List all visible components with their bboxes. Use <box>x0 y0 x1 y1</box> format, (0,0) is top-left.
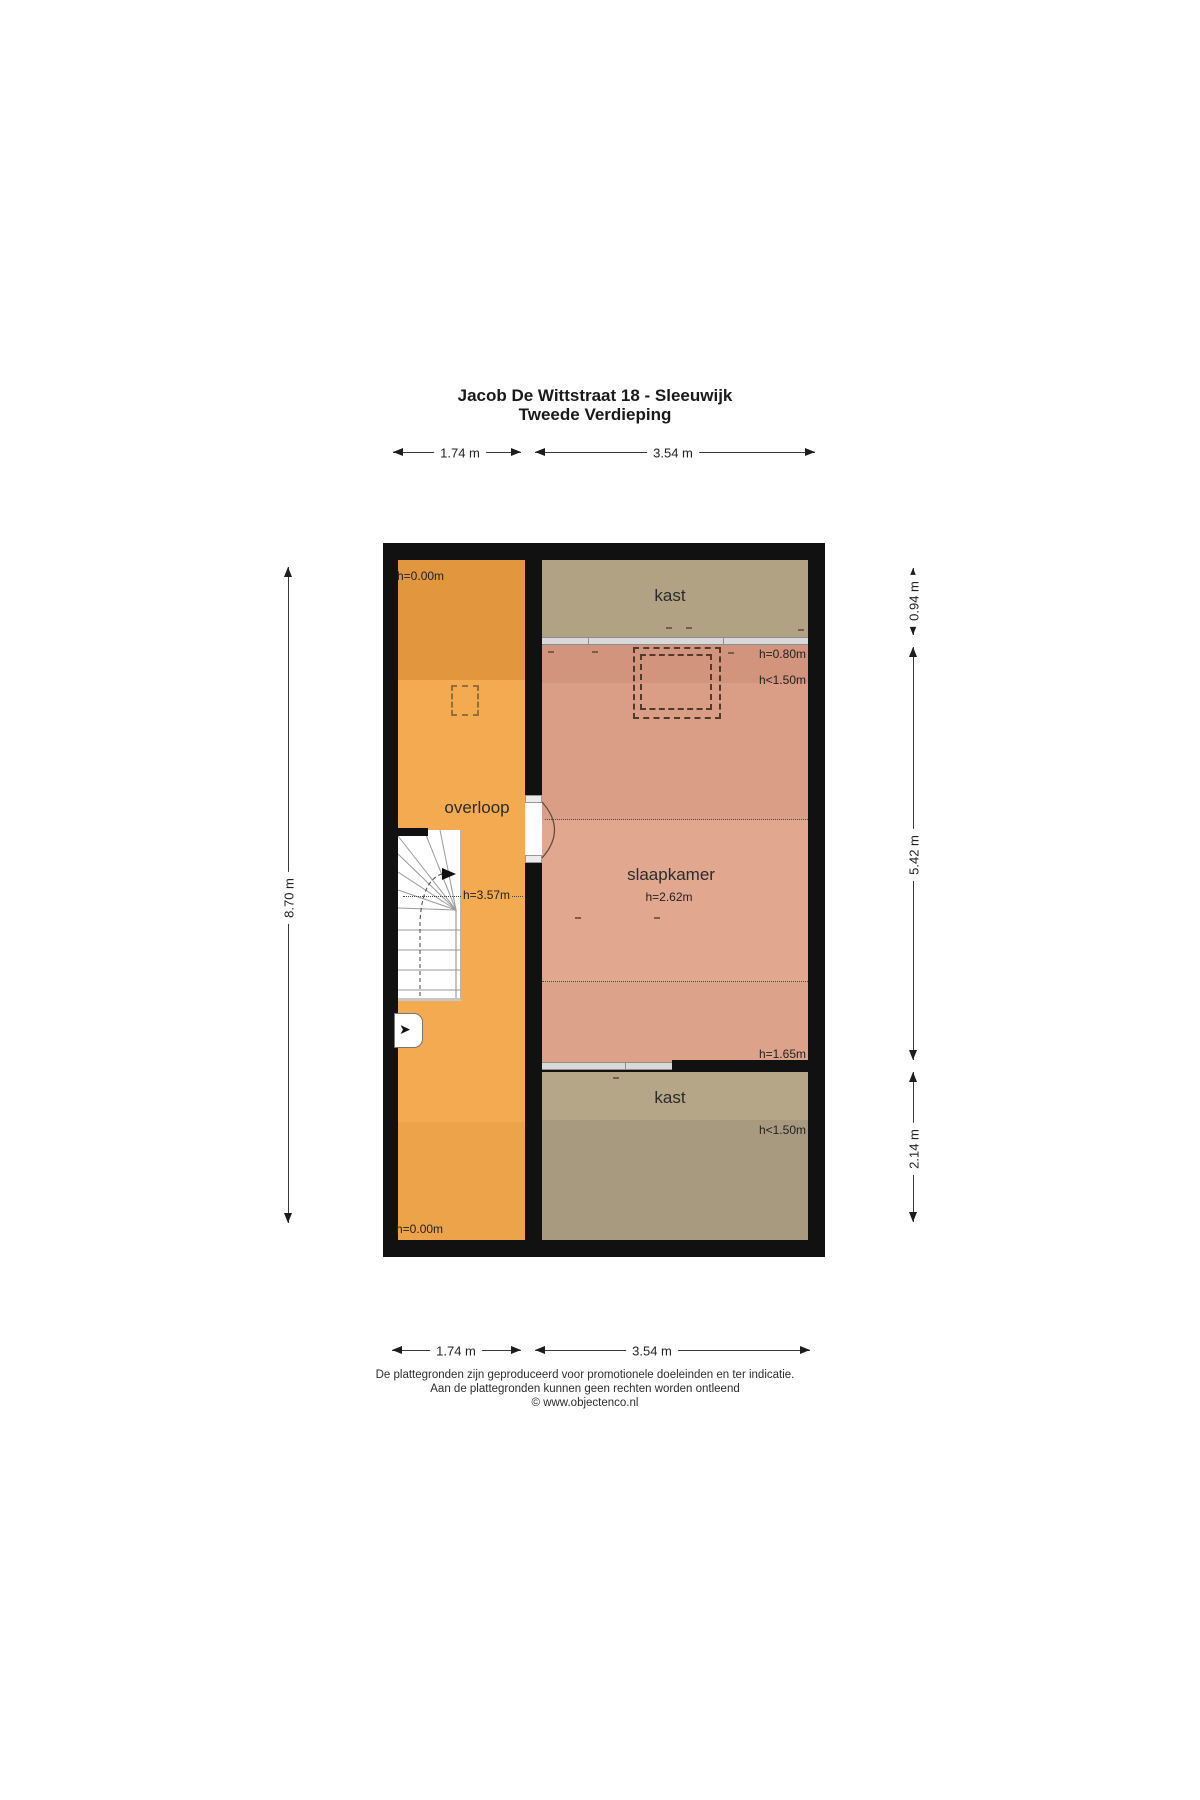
dim-label-bottom-2: 3.54 m <box>626 1344 678 1359</box>
arrow-left-icon <box>535 448 545 456</box>
staircase <box>398 830 462 1001</box>
arrow-left-icon <box>535 1346 545 1354</box>
stair-treads <box>398 830 460 998</box>
arrow-right-icon <box>805 448 815 456</box>
door-jamb <box>525 795 542 803</box>
kast-bottom-low-zone <box>542 1120 808 1240</box>
title-address: Jacob De Wittstraat 18 - Sleeuwijk <box>0 386 1190 405</box>
closet-door-divider <box>588 637 589 645</box>
dim-label-bottom-1: 1.74 m <box>430 1344 482 1359</box>
closet-door-divider <box>625 1062 626 1070</box>
arrow-down-icon <box>909 1212 917 1222</box>
dim-label-right-1: 0.94 m <box>907 575 922 627</box>
dashed-rect-feature-inner <box>640 654 712 710</box>
stairwell-wall-cap <box>390 828 428 836</box>
title-floor: Tweede Verdieping <box>0 405 1190 424</box>
arrow-up-icon <box>909 647 917 657</box>
dash-mark <box>728 652 734 654</box>
closet-door-track-bottom <box>542 1062 672 1070</box>
arrow-right-icon <box>511 448 521 456</box>
height-label-overloop-bottom: h=0.00m <box>396 1222 443 1236</box>
height-label-overloop-top: h=0.00m <box>397 569 444 583</box>
page-title: Jacob De Wittstraat 18 - Sleeuwijk Tweed… <box>0 386 1190 424</box>
disclaimer-line-2: Aan de plattegronden kunnen geen rechten… <box>0 1382 1170 1396</box>
dashed-rect-feature <box>633 647 721 719</box>
floorplan-drawing: ➤ h=0.00m overloop h=3.57m h=0.00m kast … <box>383 543 825 1257</box>
dim-label-right-2: 5.42 m <box>907 829 922 881</box>
height-label-back-wall: h=0.80m <box>759 647 806 661</box>
ventilation-box: ➤ <box>394 1013 423 1048</box>
dash-mark <box>798 629 804 631</box>
arrow-up-icon <box>909 1072 917 1082</box>
dim-label-top-1: 1.74 m <box>434 446 486 461</box>
disclaimer-line-1: De plattegronden zijn geproduceerd voor … <box>0 1368 1170 1382</box>
height-label-kast-low: h<1.50m <box>759 1123 806 1137</box>
height-label-front-wall: h=1.65m <box>759 1047 806 1061</box>
dash-mark <box>592 651 598 653</box>
dim-label-left: 8.70 m <box>282 872 297 924</box>
wall-center <box>525 560 542 1240</box>
dash-mark <box>548 651 554 653</box>
closet-door-divider <box>723 637 724 645</box>
dim-label-right-3: 2.14 m <box>907 1123 922 1175</box>
height-label-low-zone: h<1.50m <box>759 673 806 687</box>
height-label-ceiling: h=2.62m <box>645 890 692 904</box>
copyright: © www.objectenco.nl <box>0 1396 1170 1410</box>
room-label-overloop: overloop <box>444 798 509 818</box>
room-label-slaapkamer: slaapkamer <box>627 865 715 885</box>
stair-walkline <box>420 874 442 996</box>
dash-mark <box>575 917 581 919</box>
room-label-kast-top: kast <box>654 586 685 606</box>
dim-label-top-2: 3.54 m <box>647 446 699 461</box>
dashed-square-marker <box>451 685 479 716</box>
dash-mark <box>654 917 660 919</box>
arrow-down-icon <box>909 1050 917 1060</box>
door-opening <box>525 803 542 857</box>
wall-slaapkamer-kast <box>672 1060 808 1072</box>
room-label-kast-bottom: kast <box>654 1088 685 1108</box>
dash-mark <box>686 627 692 629</box>
ceiling-line-slaapkamer-1 <box>545 819 808 820</box>
stair-direction-arrow-icon <box>442 868 456 880</box>
dash-mark <box>613 1077 619 1079</box>
arrow-left-icon <box>393 448 403 456</box>
closet-door-track-top <box>542 637 808 645</box>
disclaimer: De plattegronden zijn geproduceerd voor … <box>0 1368 1170 1410</box>
door-jamb <box>525 855 542 863</box>
arrow-left-icon <box>392 1346 402 1354</box>
floorplan-page: Jacob De Wittstraat 18 - Sleeuwijk Tweed… <box>0 0 1200 1800</box>
dash-mark <box>666 627 672 629</box>
arrow-up-icon <box>284 567 292 577</box>
height-label-ridge: h=3.57m <box>461 888 512 902</box>
arrow-right-icon <box>511 1346 521 1354</box>
arrow-right-icon <box>800 1346 810 1354</box>
ventilation-icon: ➤ <box>399 1022 411 1036</box>
ceiling-line-slaapkamer-2 <box>542 981 808 982</box>
door-swing-arc <box>541 800 569 860</box>
arrow-down-icon <box>284 1213 292 1223</box>
